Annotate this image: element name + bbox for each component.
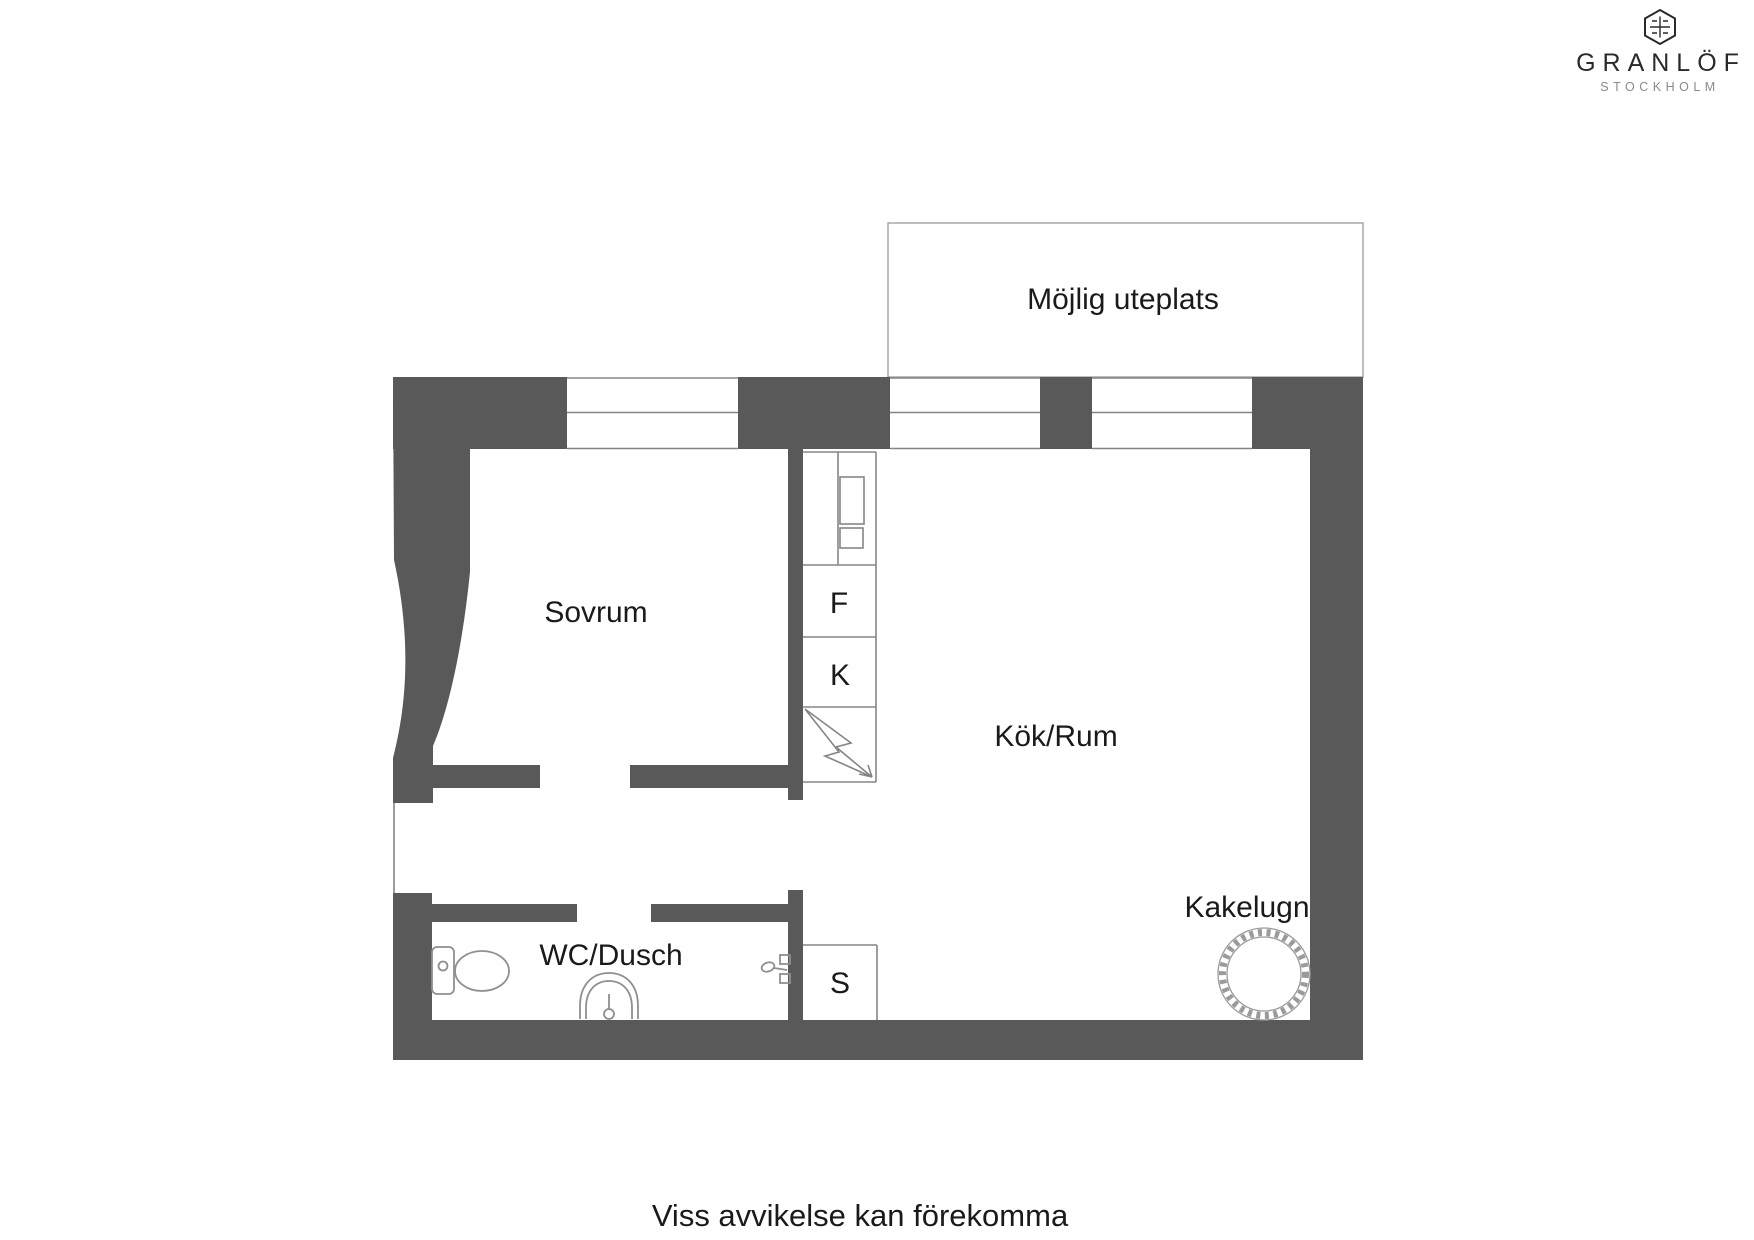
- hexagon-crest-icon: [1645, 10, 1675, 44]
- wall-bottom: [393, 1020, 1363, 1060]
- label-freezer: K: [830, 659, 850, 692]
- wall-top-corner: [1252, 377, 1363, 449]
- tiled-stove-icon: [1218, 928, 1310, 1020]
- outdoor-area: Möjlig uteplats: [888, 223, 1363, 377]
- room-label-kok-rum: Kök/Rum: [994, 720, 1117, 753]
- floor-plan-drawing: Möjlig uteplats: [0, 0, 1754, 1240]
- room-label-sovrum: Sovrum: [544, 596, 647, 629]
- kitchen-counter-icon: [838, 452, 864, 565]
- window-symbol: [567, 378, 738, 449]
- room-label-s: S: [830, 967, 850, 1000]
- logo-name: GRANLÖF: [1576, 49, 1746, 77]
- kitchen-cabinets: F K: [803, 452, 876, 782]
- room-label-mojlig-uteplats: Möjlig uteplats: [1027, 283, 1219, 316]
- wall-top-b: [738, 377, 890, 449]
- window-symbol: [890, 378, 1040, 449]
- toilet-icon: [432, 947, 509, 994]
- electrical-bolt-icon: [805, 709, 872, 777]
- footer-disclaimer: Viss avvikelse kan förekomma: [652, 1198, 1069, 1233]
- granlof-logo: GRANLÖF STOCKHOLM: [1576, 10, 1746, 94]
- floor-plan-page: Möjlig uteplats: [0, 0, 1754, 1240]
- wall-interior-upper: [788, 449, 803, 800]
- room-label-wc-dusch: WC/Dusch: [539, 939, 682, 972]
- wall-left-curved: [393, 377, 470, 803]
- wall-right: [1310, 449, 1363, 1060]
- wall-bedroom-bottom-right: [630, 765, 803, 788]
- windows: [567, 378, 1252, 449]
- label-fridge: F: [830, 587, 848, 620]
- sink-icon: [580, 973, 638, 1019]
- wall-left-lower: [393, 893, 432, 1060]
- shower-mixer-icon: [760, 955, 790, 983]
- wall-bedroom-bottom-left: [433, 765, 540, 788]
- closet-s: S: [803, 945, 877, 1020]
- window-symbol: [1092, 378, 1252, 449]
- wall-wc-top-left: [432, 904, 577, 922]
- label-kakelugn: Kakelugn: [1184, 891, 1309, 924]
- wall-wc-top-right: [651, 904, 788, 922]
- wall-top-c: [1040, 377, 1092, 449]
- logo-city: STOCKHOLM: [1600, 80, 1719, 94]
